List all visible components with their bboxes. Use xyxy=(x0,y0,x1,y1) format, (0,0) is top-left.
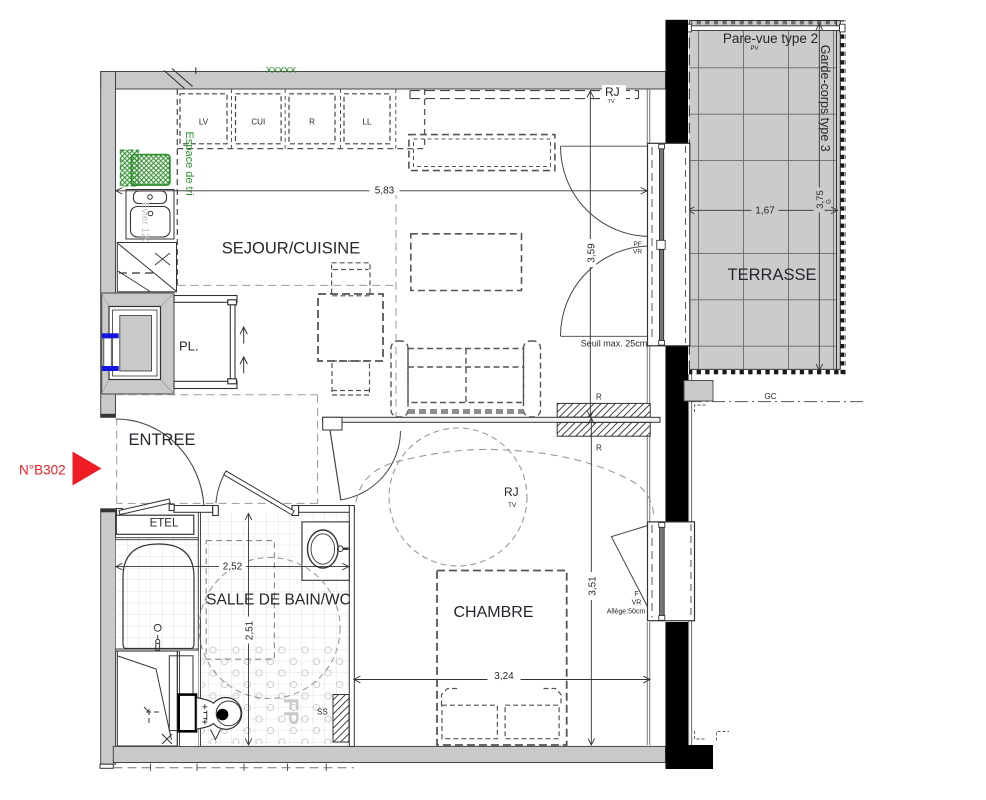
svg-text:VR: VR xyxy=(632,600,642,607)
svg-text:3,24: 3,24 xyxy=(494,671,514,682)
svg-text:LL: LL xyxy=(363,118,372,127)
svg-text:CUI: CUI xyxy=(251,118,265,127)
svg-text:G: G xyxy=(827,199,833,204)
svg-text:5,83: 5,83 xyxy=(375,185,395,196)
svg-text:2,51: 2,51 xyxy=(245,620,256,640)
svg-text:LV: LV xyxy=(199,118,209,127)
svg-text:VR: VR xyxy=(633,249,642,256)
svg-text:R: R xyxy=(309,118,315,127)
svg-text:SEJOUR/CUISINE: SEJOUR/CUISINE xyxy=(222,240,360,258)
svg-text:TV: TV xyxy=(608,99,615,105)
svg-text:GC: GC xyxy=(765,392,777,401)
svg-text:Garde-corps type 3: Garde-corps type 3 xyxy=(818,45,832,152)
svg-text:SALLE DE BAIN/WC: SALLE DE BAIN/WC xyxy=(206,592,351,609)
svg-text:RJ: RJ xyxy=(504,485,519,499)
svg-text:Evier 120: Evier 120 xyxy=(139,202,150,245)
svg-text:3,51: 3,51 xyxy=(587,576,598,596)
svg-text:Allège:50cm: Allège:50cm xyxy=(607,609,646,616)
svg-text:3,59: 3,59 xyxy=(586,243,597,263)
svg-text:Espace de tri: Espace de tri xyxy=(183,132,195,196)
svg-text:PV: PV xyxy=(750,46,758,52)
svg-text:2,52: 2,52 xyxy=(223,561,243,572)
svg-text:ENTREE: ENTREE xyxy=(129,431,196,449)
svg-text:TERRASSE: TERRASSE xyxy=(728,266,817,284)
svg-text:R: R xyxy=(596,393,602,402)
svg-text:3,75: 3,75 xyxy=(815,190,826,209)
svg-text:TV: TV xyxy=(508,502,517,509)
svg-text:SS: SS xyxy=(317,708,328,717)
svg-text:N°B302: N°B302 xyxy=(19,463,66,478)
svg-text:R: R xyxy=(596,444,602,453)
svg-text:F: F xyxy=(634,591,638,598)
svg-text:PL.: PL. xyxy=(179,339,199,354)
svg-text:PF: PF xyxy=(633,241,641,248)
svg-text:RJ: RJ xyxy=(605,85,620,99)
svg-text:ETEL: ETEL xyxy=(150,518,179,530)
svg-text:CHAMBRE: CHAMBRE xyxy=(453,604,533,621)
svg-text:Pare-vue type 2: Pare-vue type 2 xyxy=(723,31,818,46)
svg-text:FP: FP xyxy=(279,698,302,725)
svg-text:1,67: 1,67 xyxy=(755,206,775,217)
